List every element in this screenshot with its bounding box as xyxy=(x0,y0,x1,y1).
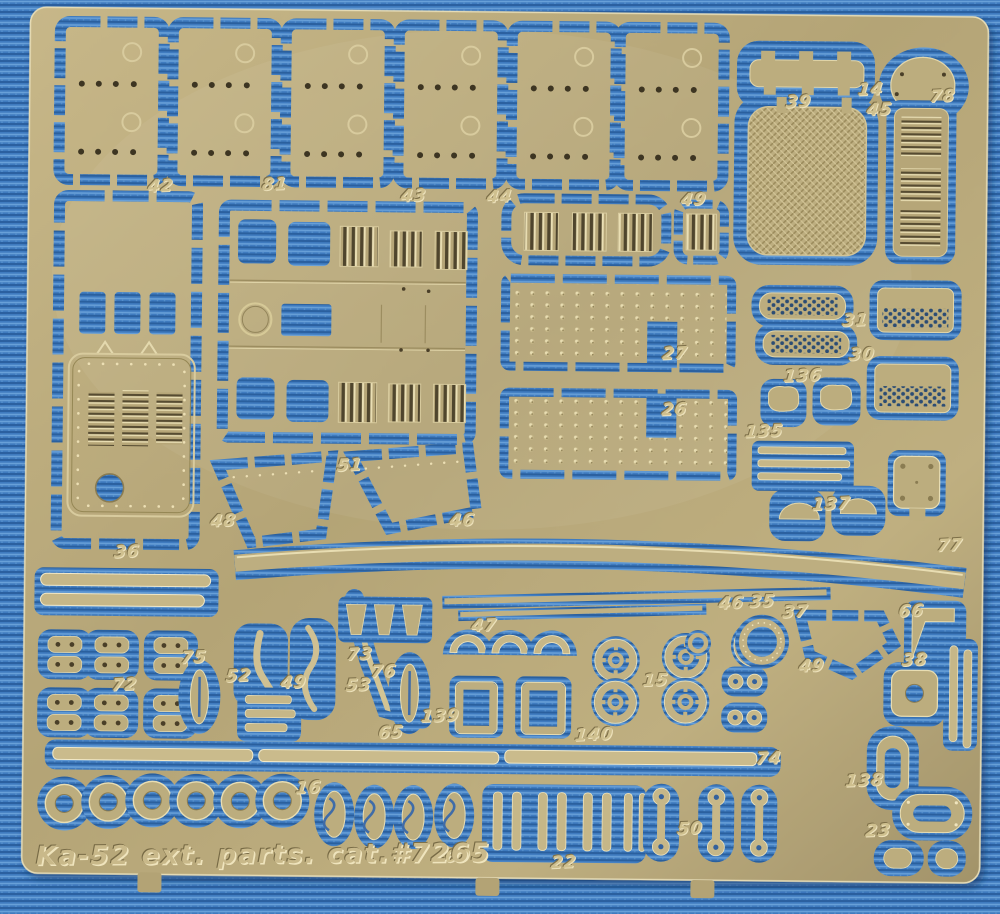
right-edge-bars xyxy=(943,639,978,751)
right-vent-upper xyxy=(869,280,962,341)
part-73-trapezoids xyxy=(338,596,432,643)
part-27-dotted-panel xyxy=(505,278,732,368)
louver-panel-top-right xyxy=(885,100,957,265)
part-139-frame xyxy=(449,675,504,738)
part-38-square xyxy=(883,662,946,727)
right-vent-lower xyxy=(866,356,959,421)
part-30-perforated xyxy=(755,323,857,366)
part-47-arcs xyxy=(443,629,577,655)
part-26-dotted-panel xyxy=(504,392,733,476)
photo-etch-sheet-illustration xyxy=(0,0,1000,914)
part-39-mesh-panel xyxy=(733,94,879,265)
part-77-plate xyxy=(887,450,946,521)
part-50-dumbbells xyxy=(643,784,778,863)
part-65-bars xyxy=(237,687,302,742)
photo-of-brass-etch-fret: 4281434449391445783130272613613513777514… xyxy=(0,0,1000,914)
part-31-perforated xyxy=(751,285,853,328)
part-140-frame xyxy=(515,676,572,739)
part-138-capsule xyxy=(892,786,973,841)
part-135-strips xyxy=(752,441,855,492)
brass-plate-group xyxy=(21,7,988,901)
part-22-bars xyxy=(482,784,647,864)
fret-caption: Ka-52 ext. parts. cat.#7265 xyxy=(36,838,491,871)
